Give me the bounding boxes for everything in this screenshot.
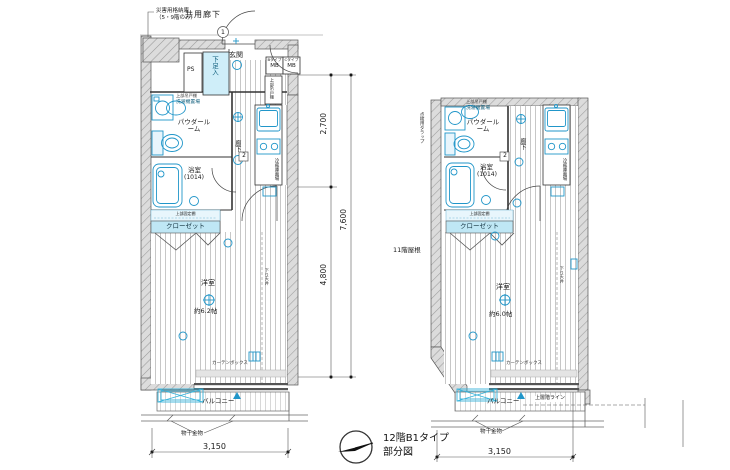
shelf-label-right: 上部固定棚 [446,212,513,217]
shelf-label-left: 上部固定棚 [151,212,220,217]
hall-label-left: 廊下 [233,140,240,158]
upper-floor-line-label: 上層階ライン [535,396,565,402]
laundry-label-left: 物干金物 [181,431,203,437]
curtain-box-left: カーテンボックス [212,361,248,366]
room-label-left: 洋室 [201,279,215,287]
dim-7600: 7,600 [340,209,349,230]
washer-label-right: 洗濯機置場 [466,106,490,112]
dim-width-left: 3,150 [203,442,226,451]
mb-b-label: MB [266,63,283,69]
circled-number-1: 1 [217,29,229,36]
shoe-box-label: 下足入 [210,56,217,94]
down-ceiling-right: 下り天井 [559,266,564,298]
washer-label-left: 洗濯機置場 [176,100,200,106]
balcony-label-right: バルコニー [487,398,519,405]
disaster-storage-label: 災害用格納庫 [156,8,189,14]
bath-size-left: (1014) [184,175,204,182]
room-size-left: 約6.2帖 [194,308,217,315]
sheet-title-line2: 部分図 [383,447,413,459]
fridge-label-right: 冷蔵庫置場 [547,158,567,182]
mb-c-type: Cタイプ [283,58,300,62]
pipe-space-label: PS [187,67,194,74]
closet-label-left: クローゼット [151,223,220,230]
room-size-right: 約6.0帖 [489,311,512,318]
powder-room-label-right: パウダールーム [466,119,500,134]
laundry-label-right: 物干金物 [480,429,502,435]
plan-linework [0,0,730,470]
door-number-left: 2 [240,153,248,160]
powder-room-label-left: パウダールーム [177,119,211,134]
upper-cabinet-label-left: 上部吊戸棚 [269,78,274,103]
washer-upper-label-left: 上部吊戸棚 [176,94,197,99]
balcony-label-left: バルコニー [202,398,234,405]
floor-plan-sheet: 共用廊下 災害用格納庫 （5・9階のみ） 1 玄関 下足入 PS Bタイプ MB… [0,0,730,470]
closet-label-right: クローゼット [446,223,513,230]
sheet-title-line1: 12階B1タイプ [383,433,449,445]
dim-width-right: 3,150 [488,447,511,456]
washer-upper-label-right: 上部吊戸棚 [466,100,487,105]
disaster-storage-floors: （5・9階のみ） [156,15,196,21]
hall-label-right: 廊下 [518,138,525,156]
door-number-right: 2 [501,153,509,160]
entrance-label: 玄関 [229,51,243,59]
mb-c-label: MB [283,63,300,69]
roof-label: 11階屋根 [393,247,421,254]
room-label-right: 洋室 [496,283,510,291]
north-compass [338,431,373,463]
dim-4800: 4,800 [320,264,329,285]
bath-size-right: (1014) [477,172,497,179]
mb-b-type: Bタイプ [266,58,283,62]
curtain-box-right: カーテンボックス [506,361,542,366]
down-ceiling-left: 下り天井 [264,268,269,300]
fridge-label-left: 冷蔵庫置場 [259,158,279,182]
inspection-ladder-label: 点検用タラップ [419,112,424,170]
dim-2700: 2,700 [320,113,329,134]
